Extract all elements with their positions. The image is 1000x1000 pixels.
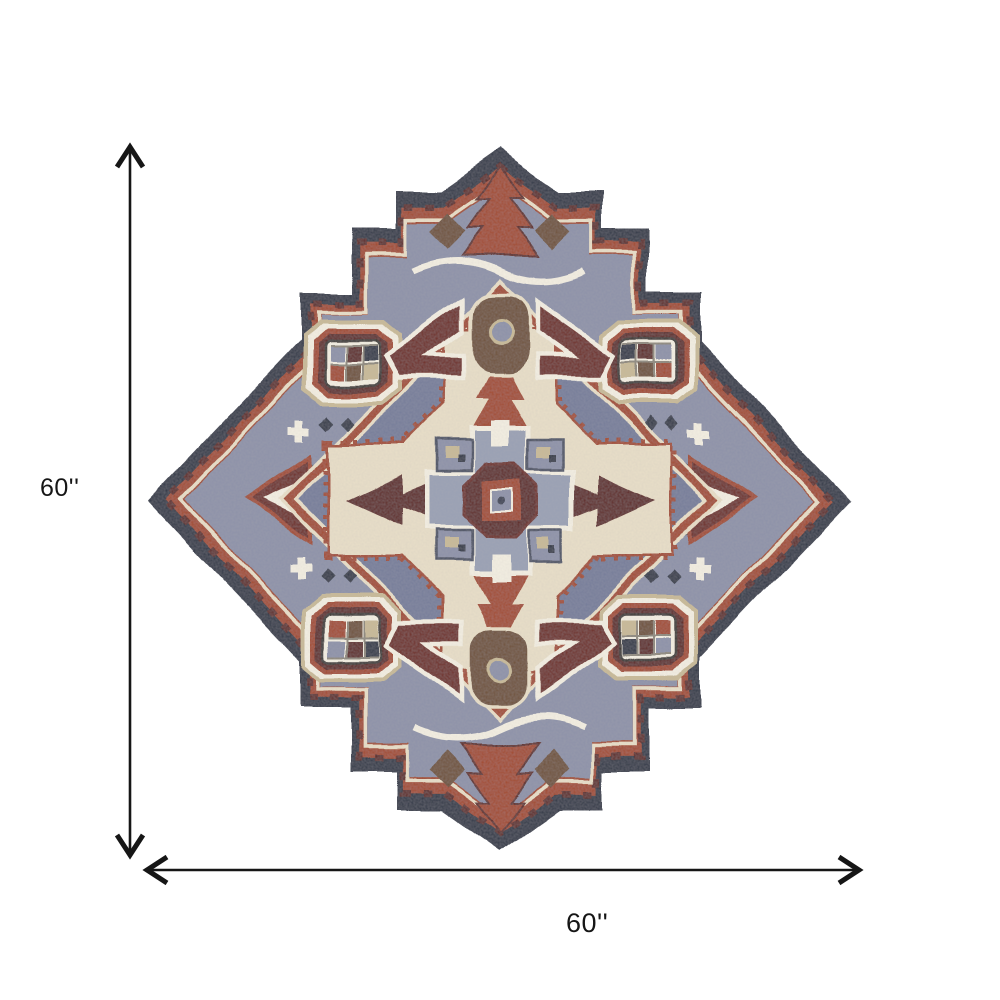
rug-corner-plate bbox=[600, 597, 696, 679]
rug-corner-plate bbox=[304, 597, 400, 679]
rug-and-dimensions-graphic bbox=[0, 0, 1000, 1000]
height-dimension-label: 60'' bbox=[40, 474, 79, 503]
rug-corner-plate bbox=[304, 321, 400, 403]
product-dimension-image: 60'' 60'' bbox=[0, 0, 1000, 1000]
rug-center-medallion bbox=[428, 420, 572, 580]
rug-image bbox=[148, 148, 852, 852]
width-dimension-label: 60'' bbox=[566, 908, 608, 939]
rug-corner-plate bbox=[600, 321, 696, 403]
